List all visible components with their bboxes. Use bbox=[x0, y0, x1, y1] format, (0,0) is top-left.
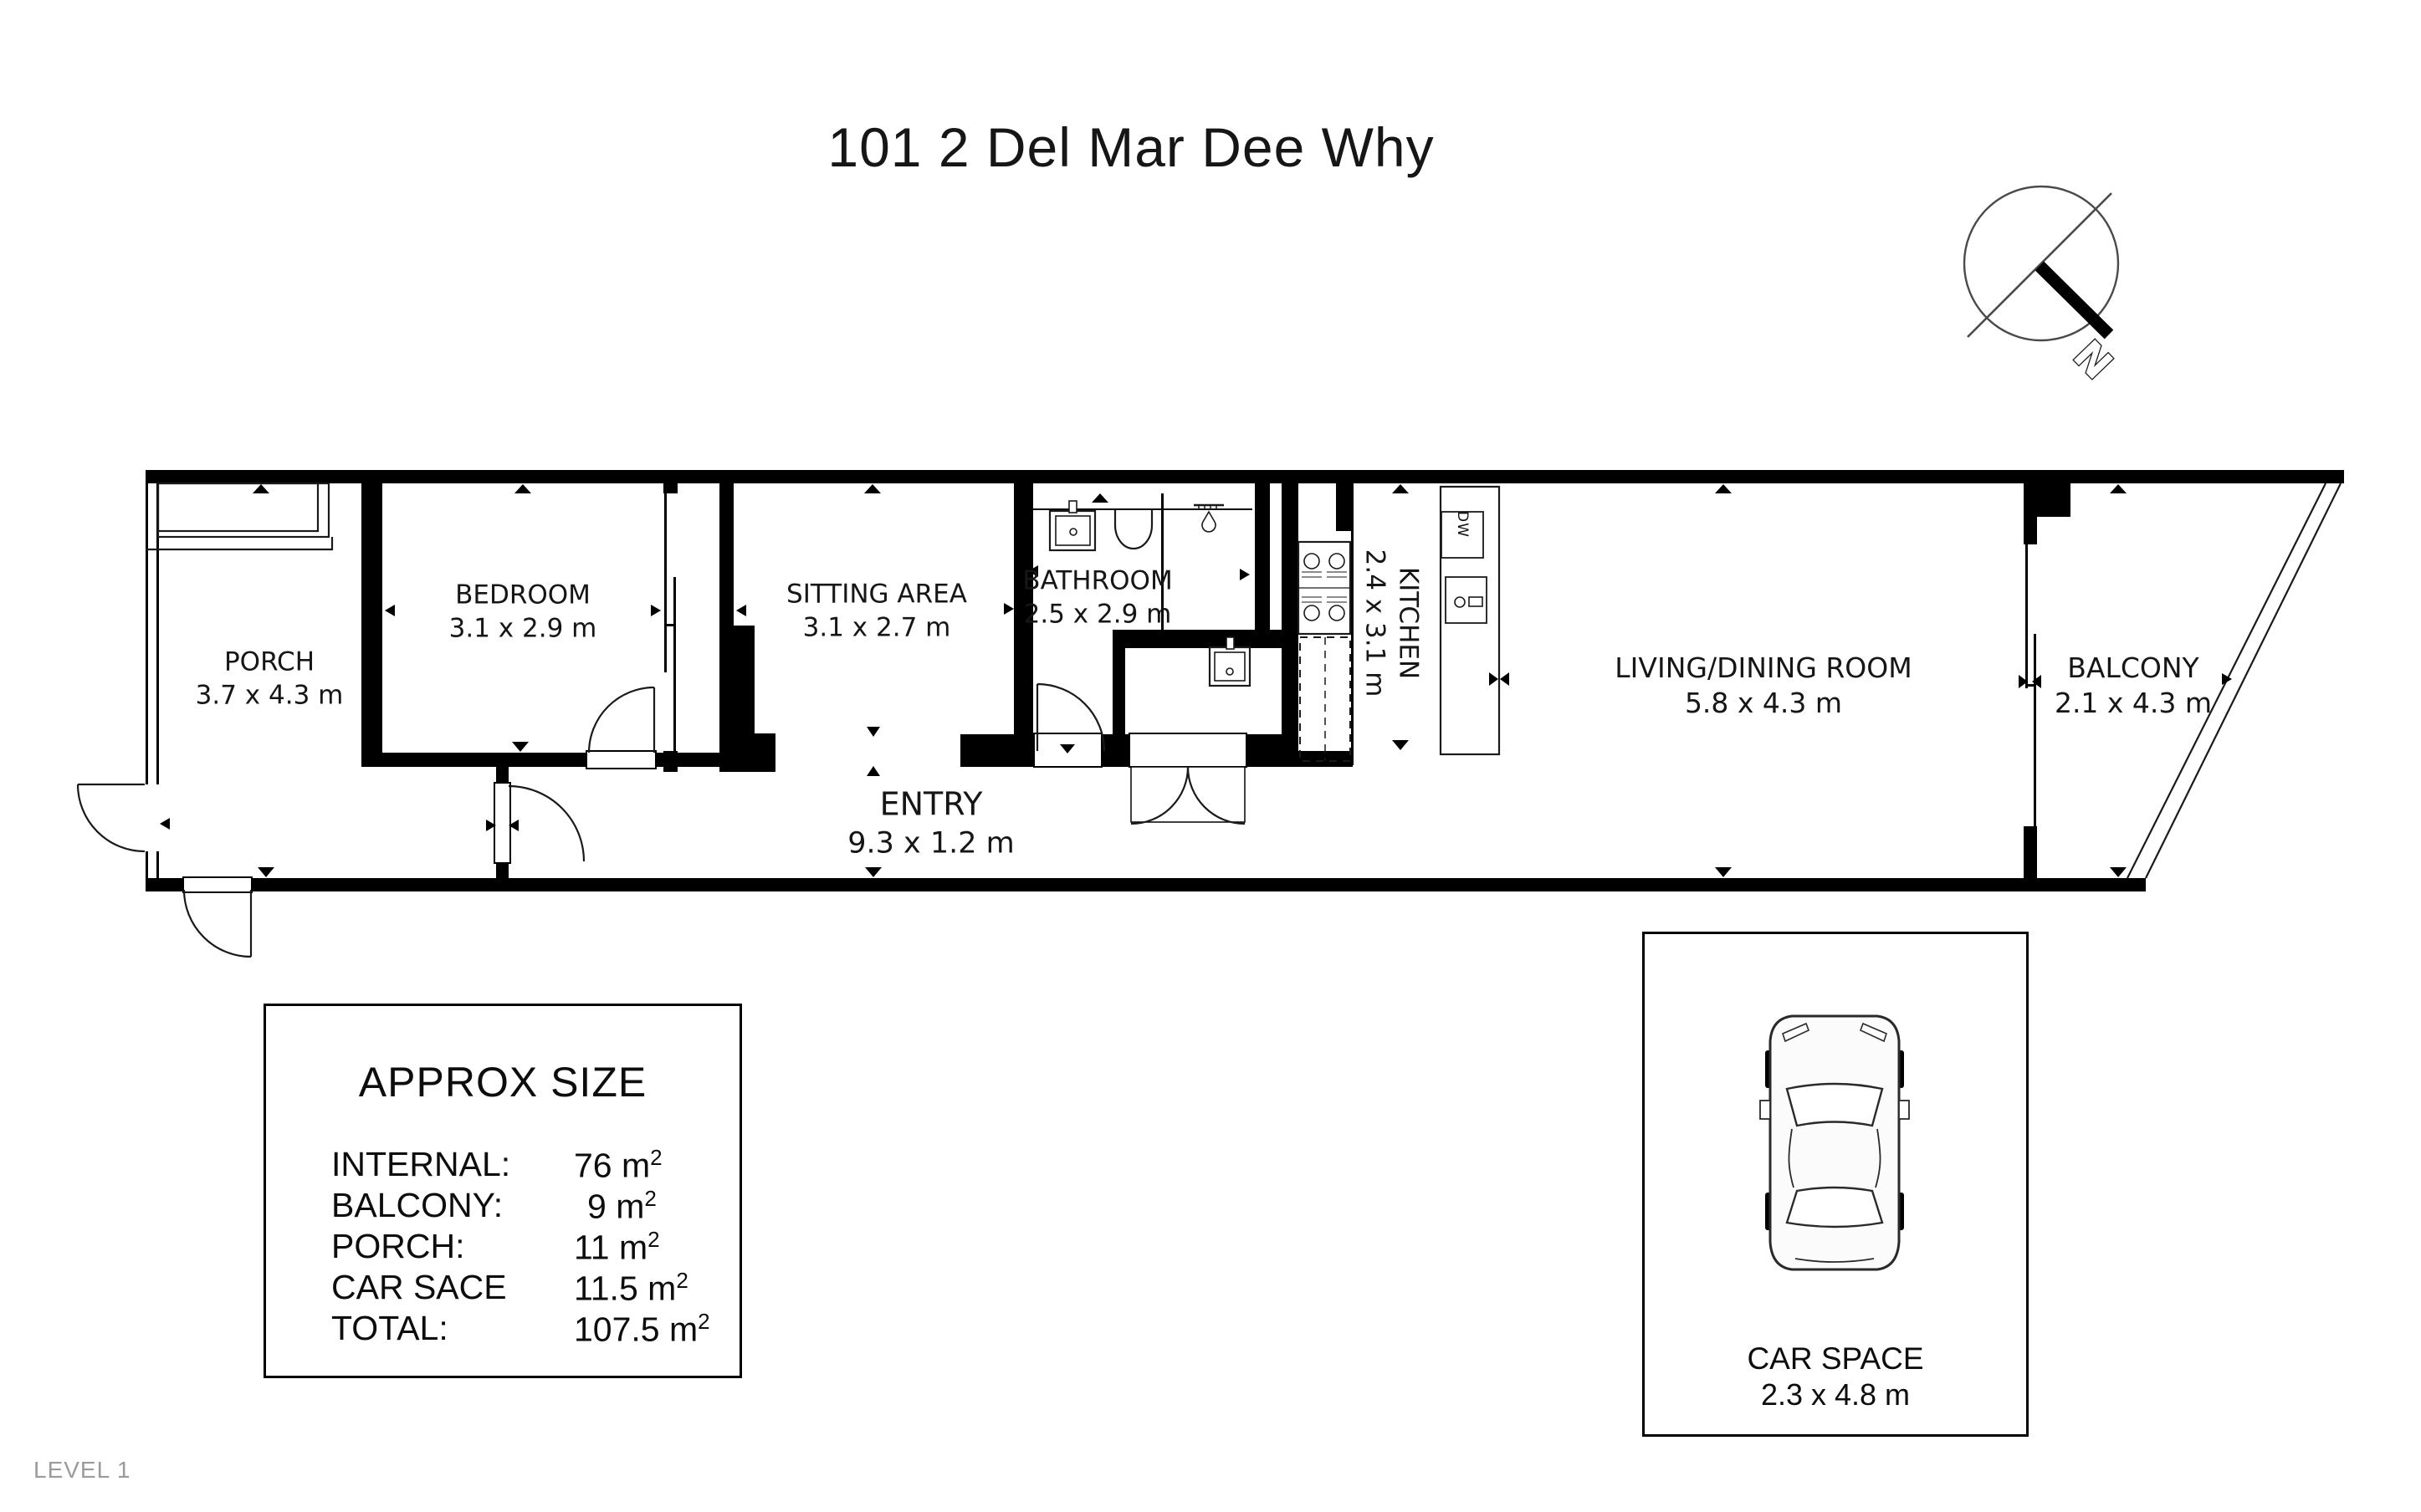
room-dims: 5.8 x 4.3 m bbox=[1615, 686, 1912, 721]
stove bbox=[1298, 542, 1350, 634]
size-value: 107.5 m2 bbox=[574, 1309, 710, 1350]
unit-sup: 2 bbox=[676, 1268, 688, 1293]
room-label-sitting-area: SITTING AREA 3.1 x 2.7 m bbox=[786, 578, 967, 644]
size-label: INTERNAL: bbox=[331, 1145, 510, 1184]
size-summary-title: APPROX SIZE bbox=[359, 1058, 647, 1106]
room-name: LIVING/DINING ROOM bbox=[1615, 651, 1912, 686]
car-space-name: CAR SPACE bbox=[1747, 1341, 1923, 1377]
size-row-balcony: BALCONY: 9 m2 bbox=[266, 1186, 740, 1227]
room-dims: 3.1 x 2.7 m bbox=[786, 611, 967, 645]
room-name: PORCH bbox=[196, 646, 344, 679]
size-value: 9 m2 bbox=[587, 1186, 657, 1227]
room-name: BEDROOM bbox=[449, 579, 597, 612]
room-name: ENTRY bbox=[847, 784, 1015, 825]
car-space-box: CAR SPACE 2.3 x 4.8 m bbox=[1642, 932, 2029, 1437]
unit-sup: 2 bbox=[644, 1186, 656, 1211]
fridge-space bbox=[1300, 637, 1350, 761]
room-label-bedroom: BEDROOM 3.1 x 2.9 m bbox=[449, 579, 597, 645]
room-label-porch: PORCH 3.7 x 4.3 m bbox=[196, 646, 344, 712]
room-label-bathroom: BATHROOM 2.5 x 2.9 m bbox=[1022, 564, 1172, 631]
room-dims: 3.1 x 2.9 m bbox=[449, 612, 597, 646]
size-summary-box: APPROX SIZE INTERNAL: 76 m2 BALCONY: 9 m… bbox=[264, 1004, 742, 1378]
room-label-kitchen: KITCHEN 2.4 x 3.1 m bbox=[1358, 549, 1424, 697]
size-row-internal: INTERNAL: 76 m2 bbox=[266, 1145, 740, 1186]
unit-sup: 2 bbox=[698, 1309, 709, 1334]
north-letter: N bbox=[2064, 332, 2121, 389]
page-title: 101 2 Del Mar Dee Why bbox=[827, 115, 1434, 179]
room-dims: 9.3 x 1.2 m bbox=[847, 825, 1015, 862]
door-swings bbox=[78, 684, 1245, 957]
room-label-balcony: BALCONY 2.1 x 4.3 m bbox=[2055, 651, 2212, 721]
room-dims: 2.5 x 2.9 m bbox=[1022, 598, 1172, 631]
compass-north-bar bbox=[2040, 266, 2109, 335]
size-value: 76 m2 bbox=[574, 1145, 663, 1186]
car-space-dims: 2.3 x 4.8 m bbox=[1747, 1377, 1923, 1412]
porch-steps bbox=[146, 483, 332, 549]
room-label-living-dining: LIVING/DINING ROOM 5.8 x 4.3 m bbox=[1615, 651, 1912, 721]
floorplan-page: N 101 2 Del Mar Dee Why PORCH 3.7 x 4.3 … bbox=[0, 0, 2421, 1512]
size-label: PORCH: bbox=[331, 1227, 464, 1266]
north-compass: N bbox=[1964, 186, 2122, 389]
room-name: KITCHEN bbox=[1391, 549, 1425, 697]
room-name: BATHROOM bbox=[1022, 564, 1172, 598]
room-label-entry: ENTRY 9.3 x 1.2 m bbox=[847, 784, 1015, 861]
room-dims: 2.4 x 3.1 m bbox=[1358, 549, 1391, 697]
unit-sup: 2 bbox=[647, 1227, 659, 1252]
bathroom-sink bbox=[1050, 501, 1095, 550]
room-name: SITTING AREA bbox=[786, 578, 967, 611]
size-value: 11 m2 bbox=[574, 1227, 660, 1268]
size-row-car-space: CAR SACE 11.5 m2 bbox=[266, 1268, 740, 1309]
unit-sup: 2 bbox=[650, 1145, 662, 1170]
room-name: BALCONY bbox=[2055, 651, 2212, 686]
size-value: 11.5 m2 bbox=[574, 1268, 688, 1309]
dishwasher-label: DW bbox=[1454, 511, 1471, 538]
level-label: LEVEL 1 bbox=[33, 1457, 131, 1484]
size-row-porch: PORCH: 11 m2 bbox=[266, 1227, 740, 1268]
size-label: BALCONY: bbox=[331, 1186, 503, 1225]
room-dims: 3.7 x 4.3 m bbox=[196, 679, 344, 713]
size-label: TOTAL: bbox=[331, 1309, 448, 1348]
toilet bbox=[1115, 510, 1152, 549]
car-space-label: CAR SPACE 2.3 x 4.8 m bbox=[1747, 1341, 1923, 1412]
size-label: CAR SACE bbox=[331, 1268, 507, 1307]
room-dims: 2.1 x 4.3 m bbox=[2055, 686, 2212, 721]
size-row-total: TOTAL: 107.5 m2 bbox=[266, 1309, 740, 1350]
